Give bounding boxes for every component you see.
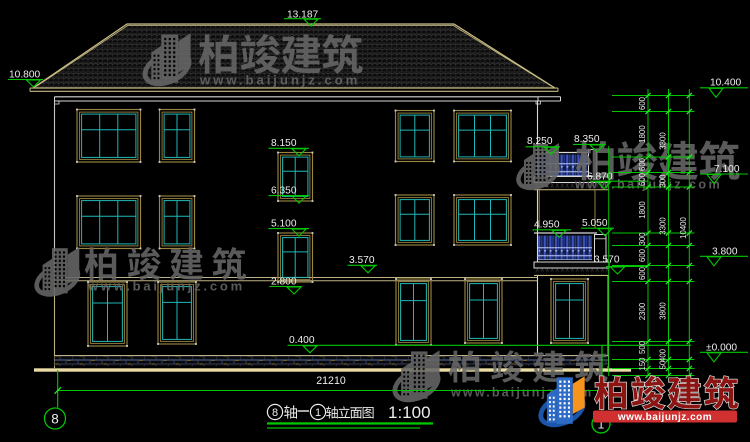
svg-text:50: 50 (659, 360, 668, 369)
svg-text:10.800: 10.800 (9, 70, 40, 81)
svg-text:600: 600 (638, 96, 647, 110)
svg-text:3300: 3300 (659, 217, 668, 235)
svg-text:www.baijunjz.com: www.baijunjz.com (617, 412, 712, 423)
svg-text:8: 8 (51, 412, 59, 427)
svg-text:2.800: 2.800 (271, 277, 297, 288)
svg-text:600: 600 (638, 266, 647, 280)
svg-text:5.100: 5.100 (271, 218, 297, 229)
svg-text:1:100: 1:100 (388, 403, 431, 422)
svg-text:8: 8 (272, 407, 278, 419)
svg-text:500: 500 (638, 340, 647, 354)
svg-text:21210: 21210 (316, 375, 346, 387)
svg-text:3.570: 3.570 (594, 255, 620, 266)
svg-text:300: 300 (638, 232, 647, 246)
svg-text:1: 1 (315, 407, 321, 419)
svg-text:4.950: 4.950 (534, 219, 560, 230)
svg-text:3.570: 3.570 (349, 255, 375, 266)
svg-text:www.baijunjz.com: www.baijunjz.com (87, 279, 245, 294)
svg-text:1800: 1800 (638, 201, 647, 219)
svg-text:600: 600 (638, 172, 647, 186)
svg-text:6.350: 6.350 (271, 186, 297, 197)
svg-text:600: 600 (638, 157, 647, 171)
svg-text:400: 400 (659, 348, 668, 362)
svg-text:150: 150 (638, 357, 647, 371)
svg-text:3300: 3300 (659, 132, 668, 150)
svg-text:10400: 10400 (679, 216, 688, 238)
svg-text:3800: 3800 (659, 302, 668, 320)
svg-text:0.400: 0.400 (289, 335, 315, 346)
svg-text:www.baijunjz.com: www.baijunjz.com (199, 73, 360, 88)
svg-text:10.400: 10.400 (710, 78, 741, 89)
svg-text:7.100: 7.100 (714, 164, 740, 175)
svg-text:8.250: 8.250 (527, 136, 553, 147)
svg-text:5.050: 5.050 (582, 218, 608, 229)
svg-text:1800: 1800 (638, 125, 647, 143)
svg-text:2300: 2300 (638, 302, 647, 320)
svg-text:300: 300 (659, 174, 668, 188)
svg-text:600: 600 (638, 248, 647, 262)
svg-text:8.350: 8.350 (574, 134, 600, 145)
svg-text:8.150: 8.150 (271, 138, 297, 149)
